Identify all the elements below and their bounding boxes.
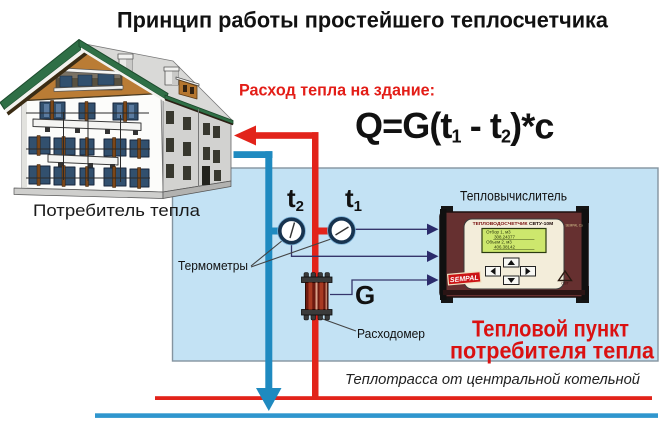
svg-text:СВТ: СВТ — [561, 281, 569, 286]
svg-text:406.38142: 406.38142 — [494, 245, 515, 250]
svg-text:Расходомер: Расходомер — [357, 327, 425, 341]
svg-text:G: G — [355, 280, 375, 310]
svg-text:Отбор 1, м3: Отбор 1, м3 — [486, 230, 511, 235]
svg-text:Расход тепла на здание:: Расход тепла на здание: — [239, 81, 435, 100]
svg-text:потребителя тепла: потребителя тепла — [450, 338, 654, 364]
svg-text:Термометры: Термометры — [178, 258, 248, 273]
svg-text:Потребитель тепла: Потребитель тепла — [33, 201, 201, 220]
svg-text:Теплотрасса от центральной кот: Теплотрасса от центральной котельной — [345, 371, 641, 388]
svg-text:Объем 2, м3: Объем 2, м3 — [486, 240, 512, 245]
svg-text:SEMPAL Co: SEMPAL Co — [565, 223, 583, 227]
svg-text:308.24377: 308.24377 — [494, 235, 515, 240]
svg-text:Принцип работы простейшего теп: Принцип работы простейшего теплосчетчика — [117, 8, 609, 33]
svg-text:Тепловычислитель: Тепловычислитель — [460, 189, 567, 204]
svg-text:ТЕПЛОВОДОСЧЕТЧИК СВТУ-10М: ТЕПЛОВОДОСЧЕТЧИК СВТУ-10М — [473, 221, 554, 227]
